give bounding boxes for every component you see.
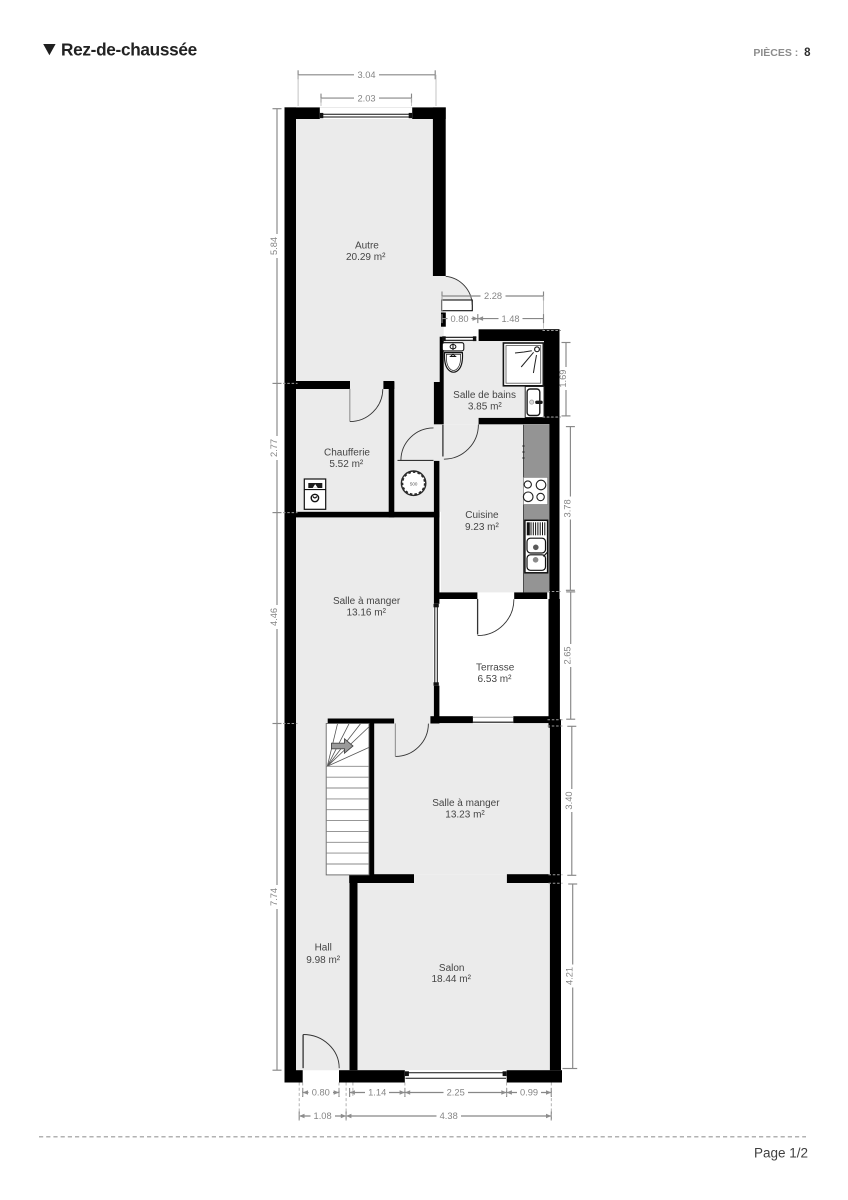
svg-text:0.80: 0.80: [312, 1088, 330, 1098]
svg-text:1.48: 1.48: [501, 314, 519, 324]
svg-text:2.65: 2.65: [563, 646, 573, 664]
svg-text:Rez-de-chaussée: Rez-de-chaussée: [61, 40, 197, 60]
svg-text:1.14: 1.14: [368, 1088, 386, 1098]
svg-text:3.04: 3.04: [357, 70, 375, 80]
svg-text:500: 500: [410, 481, 418, 486]
svg-text:1.08: 1.08: [314, 1111, 332, 1121]
svg-text:7.74: 7.74: [269, 888, 279, 906]
svg-text:2.77: 2.77: [269, 439, 279, 457]
svg-text:Cuisine9.23 m²: Cuisine9.23 m²: [465, 510, 500, 533]
svg-text:2.28: 2.28: [484, 291, 502, 301]
svg-text:3.40: 3.40: [564, 791, 574, 809]
svg-text:5.84: 5.84: [269, 237, 279, 255]
svg-text:Terrasse6.53 m²: Terrasse6.53 m²: [476, 663, 515, 685]
svg-text:1.69: 1.69: [558, 370, 568, 388]
svg-text:0.80: 0.80: [450, 314, 468, 324]
svg-text:PIÈCES : 8: PIÈCES : 8: [753, 46, 811, 59]
svg-text:2.25: 2.25: [447, 1088, 465, 1098]
svg-text:3.78: 3.78: [562, 499, 572, 517]
svg-text:4.21: 4.21: [565, 967, 575, 985]
svg-text:4.46: 4.46: [269, 608, 279, 626]
svg-text:2.03: 2.03: [357, 93, 375, 103]
svg-text:0.99: 0.99: [520, 1088, 538, 1098]
svg-text:Page 1/2: Page 1/2: [754, 1146, 808, 1161]
svg-text:4.38: 4.38: [440, 1111, 458, 1121]
